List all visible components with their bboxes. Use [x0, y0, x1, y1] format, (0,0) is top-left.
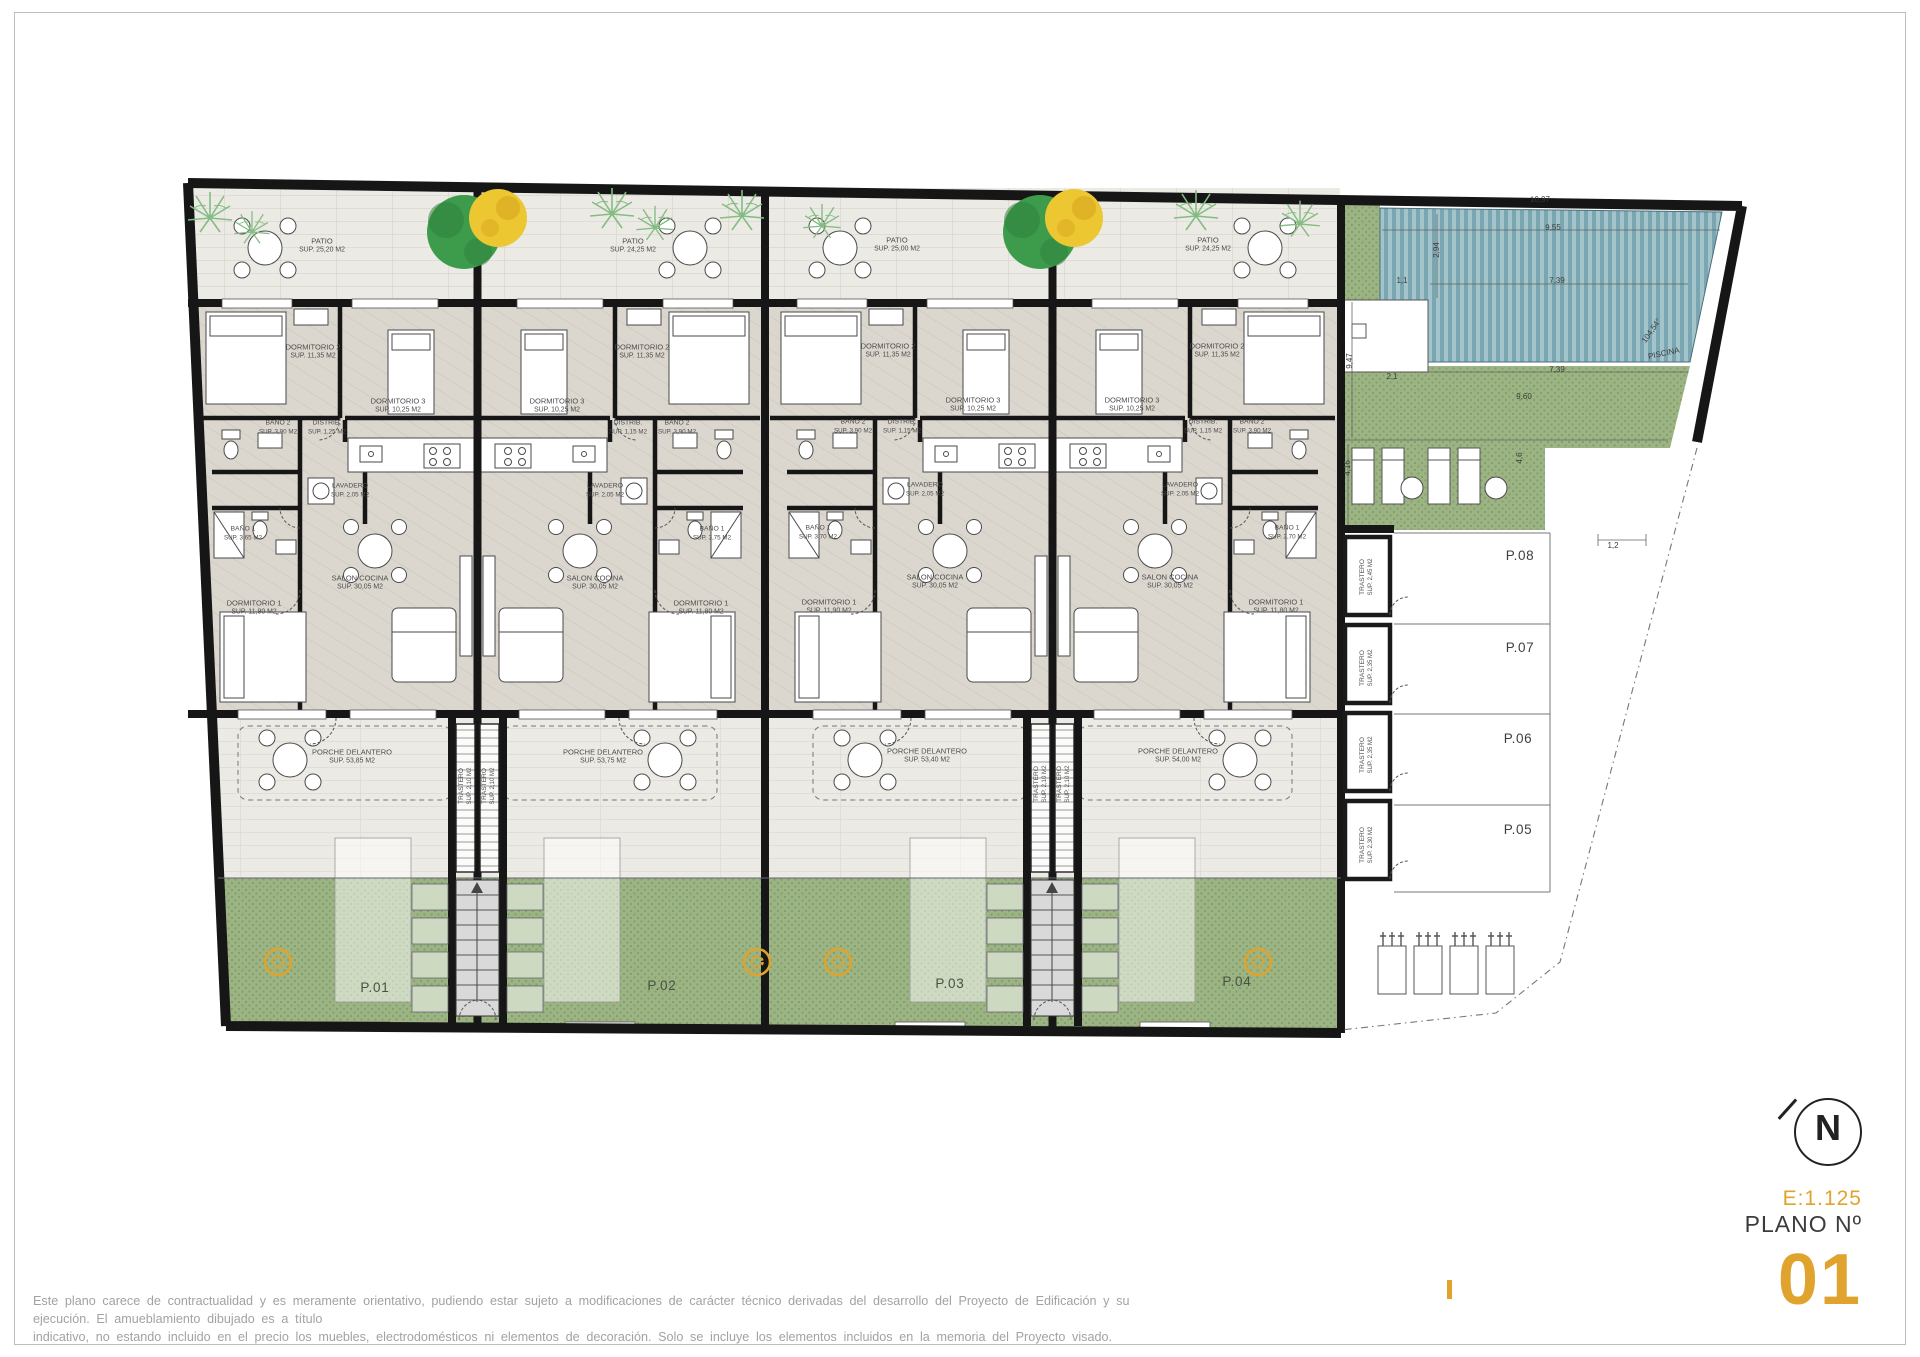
scale-label: E:1.125 — [1642, 1187, 1862, 1211]
floor-plan-drawing — [0, 0, 1920, 1357]
disclaimer-line-1: Este plano carece de contractualidad y e… — [33, 1293, 1151, 1329]
north-arrow-icon: N — [1794, 1098, 1862, 1166]
sheet-number-label: PLANO Nº — [1642, 1211, 1862, 1238]
sheet-marker-tick — [1447, 1280, 1452, 1299]
disclaimer-line-2: indicativo, no estando incluido en el pr… — [33, 1329, 1151, 1347]
plan-page: PATIOSUP. 25,20 M2DORMITORIO 2SUP. 11,35… — [0, 0, 1920, 1357]
title-block: N E:1.125 PLANO Nº 01 — [1642, 1098, 1862, 1316]
north-letter: N — [1796, 1107, 1860, 1149]
north-needle-icon — [1778, 1099, 1797, 1120]
disclaimer-text: Este plano carece de contractualidad y e… — [33, 1293, 1151, 1347]
sheet-number-value: 01 — [1642, 1244, 1862, 1316]
